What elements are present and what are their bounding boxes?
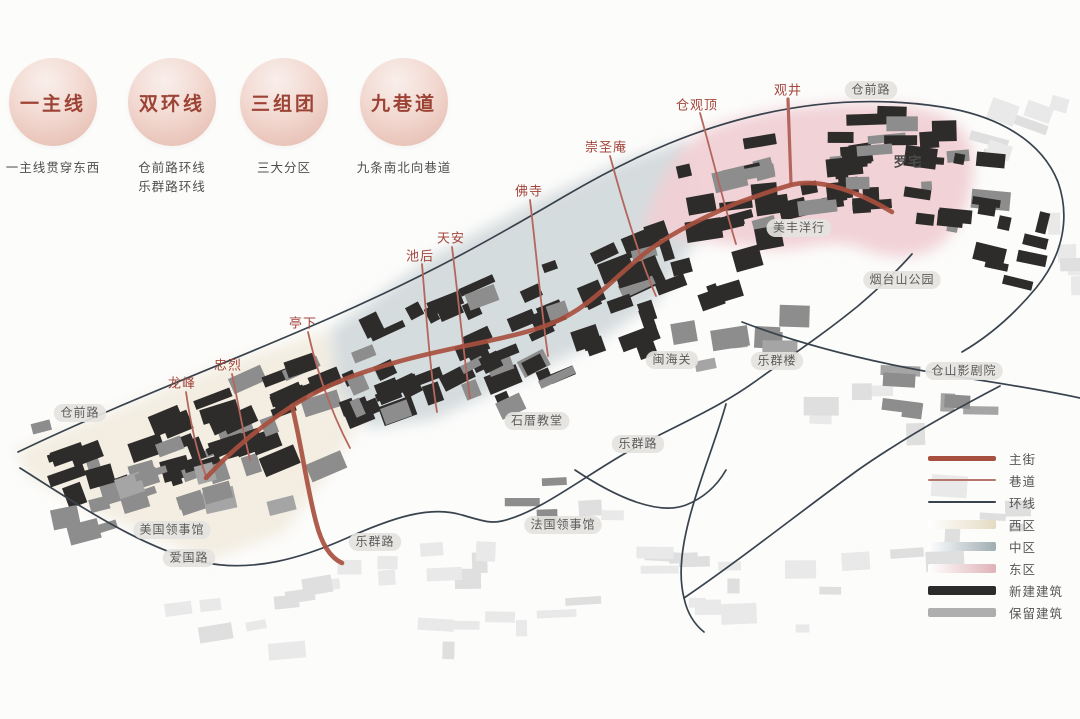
lane-label: 亭下 <box>289 315 317 330</box>
legend-swatch <box>928 608 996 617</box>
legend-swatch <box>928 564 996 573</box>
road-label-pill: 仓前路 <box>845 81 898 99</box>
building <box>1016 250 1047 267</box>
building <box>972 242 1007 266</box>
legend: 主街巷道环线西区中区东区新建建筑保留建筑 <box>928 447 1078 623</box>
context-building <box>804 397 839 416</box>
context-building <box>721 603 757 625</box>
context-building <box>426 567 462 582</box>
building <box>31 419 52 434</box>
context-building <box>378 570 396 586</box>
legend-swatch <box>928 586 996 595</box>
legend-item-3: 环线 <box>928 491 1078 513</box>
context-building <box>164 601 192 617</box>
lane-label: 崇圣庵 <box>585 139 627 154</box>
legend-swatch <box>928 479 996 481</box>
legend-item-4: 西区 <box>928 513 1078 535</box>
road-label-text: 乐群路 <box>618 436 657 451</box>
building <box>1022 233 1048 249</box>
legend-item-7: 新建建筑 <box>928 579 1078 601</box>
road-label-text: 美丰洋行 <box>773 220 825 235</box>
road-label-text: 法国领事馆 <box>530 517 595 532</box>
building <box>997 215 1012 231</box>
context-building <box>796 624 810 632</box>
legend-item-2: 巷道 <box>928 469 1078 491</box>
context-building <box>636 547 673 559</box>
road-label-pill: 法国领事馆 <box>524 516 602 534</box>
context-building <box>198 622 234 643</box>
building-preserved <box>670 320 698 345</box>
building-preserved <box>901 401 923 419</box>
building <box>846 177 870 190</box>
legend-swatch <box>928 520 996 529</box>
road-label-pill: 乐群路 <box>612 435 665 453</box>
lane-label: 天安 <box>437 230 465 245</box>
building <box>953 153 965 165</box>
urban-design-map-poster: 龙峰忠烈亭下池后天安佛寺崇圣庵仓观顶观井罗宅仓前路仓前路美丰洋行烟台山公园乐群楼… <box>0 0 1080 719</box>
context-building <box>516 620 527 636</box>
context-building <box>565 596 601 606</box>
road-label-pill: 闽海关 <box>646 351 699 369</box>
road-label-pill: 仓山影剧院 <box>925 362 1003 380</box>
context-building <box>819 587 841 595</box>
legend-label: 保留建筑 <box>1009 603 1063 622</box>
road-label-text: 仓前路 <box>851 82 890 97</box>
building <box>886 116 918 131</box>
context-building <box>1071 276 1080 295</box>
lane-label: 池后 <box>406 248 434 263</box>
building <box>932 120 957 141</box>
context-building <box>906 423 925 446</box>
map-canvas: 龙峰忠烈亭下池后天安佛寺崇圣庵仓观顶观井罗宅仓前路仓前路美丰洋行烟台山公园乐群楼… <box>0 0 1080 719</box>
road-label-text: 石厝教堂 <box>511 413 563 428</box>
road-label-text: 烟台山公园 <box>869 272 934 287</box>
district-label: 罗宅 <box>894 154 923 170</box>
legend-label: 西区 <box>1009 515 1036 534</box>
context-building <box>245 619 267 632</box>
legend-swatch <box>928 456 996 461</box>
context-building <box>1060 258 1080 272</box>
legend-label: 新建建筑 <box>1009 581 1063 600</box>
context-building <box>450 621 479 630</box>
ring-road-4 <box>681 404 726 632</box>
road-label-text: 仓前路 <box>60 405 99 420</box>
building-preserved <box>944 394 971 409</box>
context-building <box>601 510 624 520</box>
road-label-pill: 爱国路 <box>163 549 216 567</box>
building <box>1002 275 1033 291</box>
road-label-pill: 乐群楼 <box>751 352 804 370</box>
road-label-pill: 美丰洋行 <box>767 219 832 237</box>
context-building <box>890 547 924 559</box>
context-building <box>785 560 816 578</box>
building <box>916 213 935 226</box>
context-building <box>268 641 307 661</box>
road-label-text: 闽海关 <box>652 352 691 367</box>
road-label-pill: 美国领事馆 <box>133 521 211 539</box>
building <box>828 132 854 143</box>
legend-item-6: 东区 <box>928 557 1078 579</box>
legend-label: 中区 <box>1009 537 1036 556</box>
building-preserved <box>542 477 567 486</box>
building <box>826 156 864 178</box>
context-building <box>442 642 454 660</box>
lane-label: 佛寺 <box>515 183 543 198</box>
lane-label: 仓观顶 <box>676 97 718 112</box>
road-label-pill: 烟台山公园 <box>863 271 941 289</box>
road-label-pill: 仓前路 <box>54 404 107 422</box>
road-label-text: 仓山影剧院 <box>931 364 996 378</box>
road-label-text: 美国领事馆 <box>139 522 204 537</box>
context-building <box>727 578 739 593</box>
legend-label: 环线 <box>1009 493 1036 512</box>
building <box>1035 211 1050 234</box>
lane-label: 忠烈 <box>214 357 242 372</box>
road-label-pill: 石厝教堂 <box>505 412 570 430</box>
context-building <box>852 383 872 400</box>
context-building <box>485 611 515 622</box>
road-label-pill: 乐群路 <box>349 533 402 551</box>
building-preserved <box>505 498 540 506</box>
context-building <box>841 551 870 571</box>
context-building <box>578 500 602 517</box>
legend-item-8: 保留建筑 <box>928 601 1078 623</box>
building-preserved <box>883 372 916 387</box>
context-building <box>420 542 444 557</box>
context-building <box>537 609 577 618</box>
context-building <box>377 556 397 570</box>
lane-label: 龙峰 <box>168 375 196 390</box>
building <box>976 152 1006 169</box>
legend-label: 主街 <box>1009 449 1036 468</box>
context-building <box>695 599 722 615</box>
legend-item-1: 主街 <box>928 447 1078 469</box>
context-building <box>417 618 454 632</box>
context-building <box>641 566 679 574</box>
context-building <box>199 598 221 612</box>
context-building <box>476 541 496 562</box>
building-preserved <box>779 305 810 328</box>
road-label-text: 乐群路 <box>355 534 394 549</box>
building-preserved <box>710 325 750 351</box>
legend-item-5: 中区 <box>928 535 1078 557</box>
legend-swatch <box>928 501 996 503</box>
legend-swatch <box>928 542 996 551</box>
road-label-text: 乐群楼 <box>757 353 796 368</box>
legend-label: 巷道 <box>1009 471 1036 490</box>
road-label-text: 爱国路 <box>169 550 208 565</box>
lane-label: 观井 <box>774 82 802 97</box>
legend-label: 东区 <box>1009 559 1036 578</box>
context-building <box>301 574 333 596</box>
